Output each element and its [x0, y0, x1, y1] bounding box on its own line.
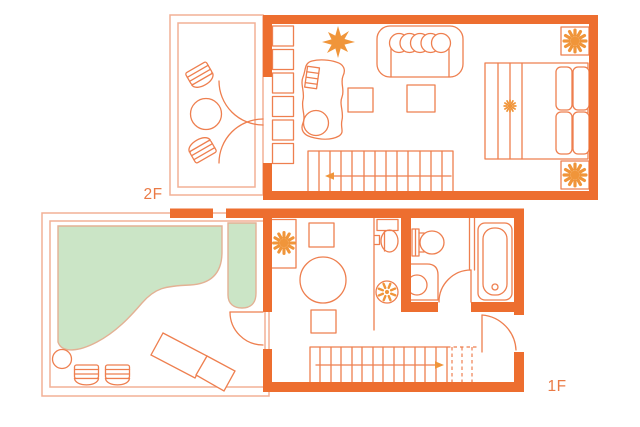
potted-plant [561, 161, 589, 189]
garden-chair-icon [75, 365, 99, 385]
staircase-1f [310, 347, 478, 384]
bath-partition [470, 218, 475, 270]
rug-stool [304, 111, 329, 136]
vanity-sink-icon [375, 230, 398, 252]
stair-steps [319, 151, 442, 192]
room-1f-furniture [272, 218, 512, 384]
balcony-inner-border [178, 23, 255, 187]
bed-flower-icon [504, 100, 516, 112]
dining-chair [309, 223, 334, 247]
balcony-round-table [191, 99, 222, 130]
potted-plant-icon [564, 164, 586, 186]
bathtub-icon [478, 223, 512, 300]
balcony-chair-icon [185, 61, 216, 90]
terrace-1f [42, 213, 269, 396]
balcony-outer-border [170, 15, 263, 195]
closet-shelves [273, 26, 294, 164]
double-bed [485, 63, 589, 159]
magazine-rack [305, 66, 320, 88]
sofa [377, 26, 463, 77]
starburst-decor-icon [322, 26, 355, 58]
entry-door [482, 315, 516, 352]
vanity-shelf [377, 220, 398, 231]
sofa-cushions [390, 34, 451, 53]
lawn-strip [228, 223, 256, 308]
potted-plant [561, 27, 589, 55]
floor-plan-image: 2F [0, 0, 640, 427]
floor-label-2f: 2F [143, 186, 162, 203]
washing-machine-icon [376, 281, 398, 303]
staircase-2f [308, 151, 453, 192]
potted-plant-icon [564, 30, 586, 52]
sun-lounger [151, 333, 235, 391]
floor-plan-svg: 2F [0, 0, 640, 427]
bed-pillows [556, 67, 589, 154]
shelf-plant-icon [274, 233, 295, 254]
floor-label-1f: 1F [547, 378, 566, 395]
garden-chair-icon [106, 365, 130, 385]
coffee-table [407, 85, 435, 112]
dining-table [300, 257, 346, 303]
toilet-icon [412, 229, 444, 256]
bathroom-door [439, 270, 471, 302]
room-2f-furniture [273, 26, 590, 192]
garden-stone [53, 350, 72, 369]
stair-dashed-continuation [447, 347, 478, 384]
balcony-chair-icon [186, 134, 217, 163]
lawn [58, 226, 222, 350]
side-table [348, 88, 373, 112]
french-doors [219, 81, 263, 163]
balcony-2f [170, 15, 263, 195]
stair-arrow-right-icon [435, 361, 444, 369]
dining-chair [311, 310, 336, 333]
terrace-door [230, 312, 263, 345]
